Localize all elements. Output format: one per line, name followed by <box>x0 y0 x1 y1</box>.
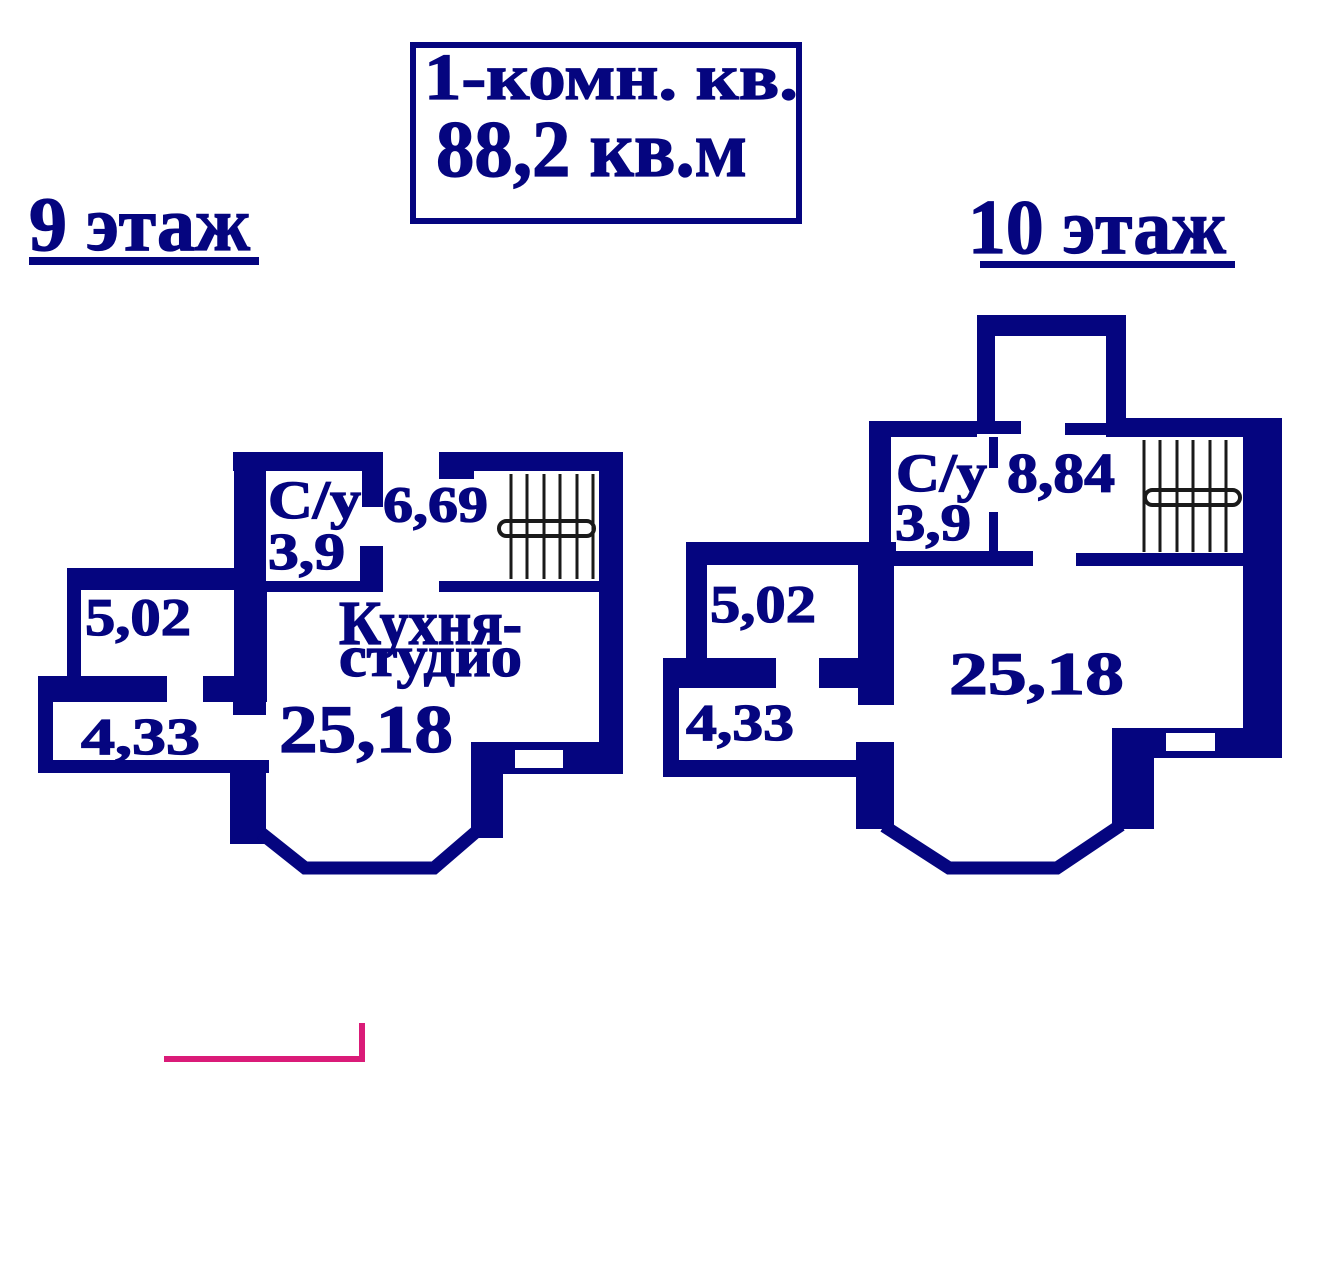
svg-text:С/у: С/у <box>268 470 361 530</box>
svg-text:студио: студио <box>339 624 522 689</box>
svg-text:8,84: 8,84 <box>1007 443 1115 505</box>
svg-text:3,9: 3,9 <box>895 495 971 552</box>
svg-text:10 этаж: 10 этаж <box>968 184 1226 270</box>
svg-text:4,33: 4,33 <box>81 709 200 766</box>
svg-text:88,2 кв.м: 88,2 кв.м <box>436 106 747 194</box>
svg-text:9 этаж: 9 этаж <box>29 181 250 267</box>
svg-text:6,69: 6,69 <box>383 478 488 534</box>
svg-text:С/у: С/у <box>896 443 987 503</box>
svg-text:1-комн. кв.: 1-комн. кв. <box>424 41 798 114</box>
svg-text:25,18: 25,18 <box>279 691 453 767</box>
svg-text:3,9: 3,9 <box>268 524 345 581</box>
svg-text:5,02: 5,02 <box>710 576 816 634</box>
svg-text:25,18: 25,18 <box>949 641 1124 707</box>
svg-text:4,33: 4,33 <box>686 695 794 752</box>
svg-text:5,02: 5,02 <box>85 589 191 647</box>
